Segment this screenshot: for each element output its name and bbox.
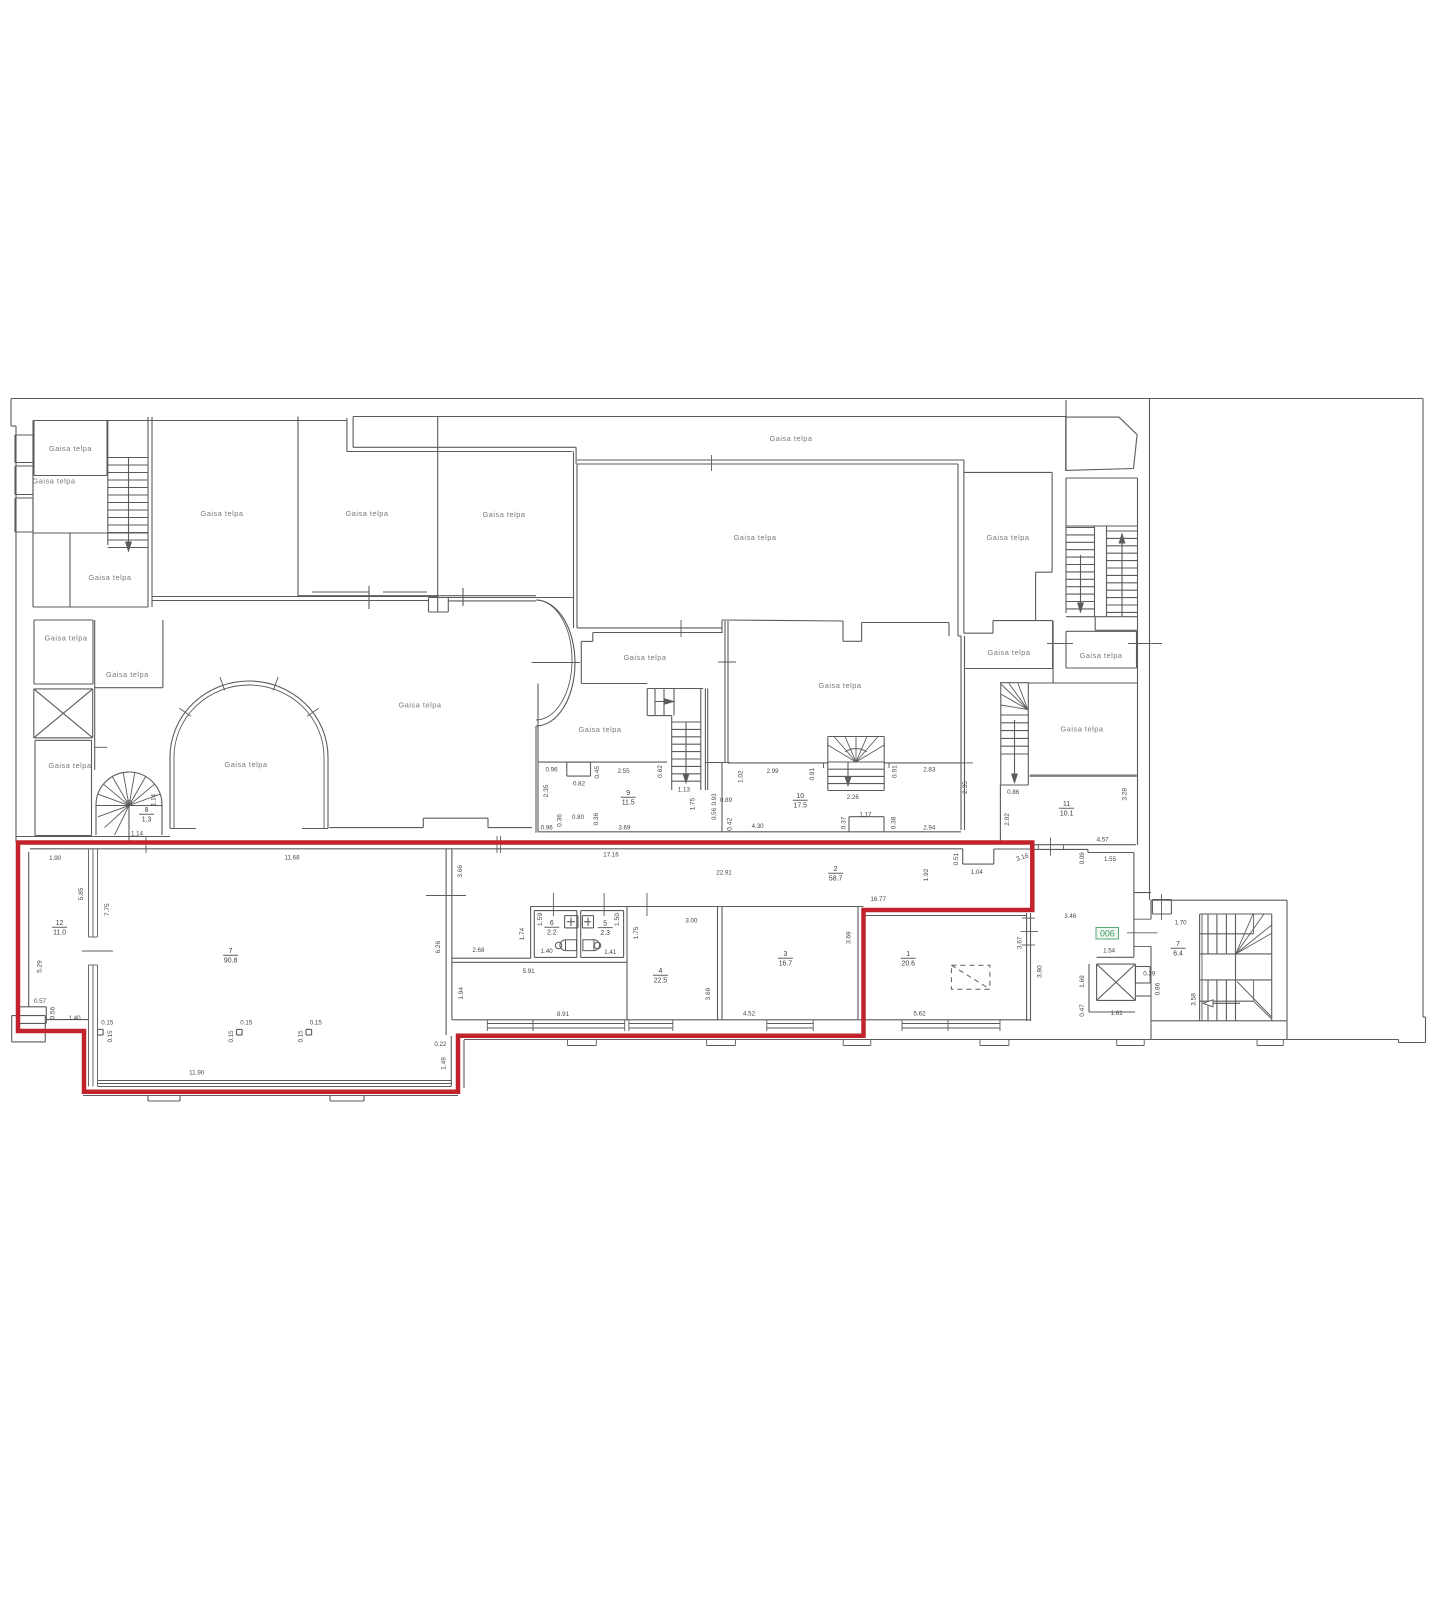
- svg-text:8.91: 8.91: [557, 1011, 570, 1018]
- svg-text:20.6: 20.6: [901, 960, 915, 967]
- svg-text:4.52: 4.52: [743, 1010, 756, 1017]
- svg-text:6.4: 6.4: [1173, 950, 1183, 957]
- svg-text:0.15: 0.15: [228, 1030, 235, 1043]
- svg-text:1.04: 1.04: [971, 869, 984, 876]
- svg-text:Gaisa telpa: Gaisa telpa: [225, 760, 268, 769]
- svg-text:1.55: 1.55: [1104, 856, 1117, 863]
- svg-text:0.15: 0.15: [101, 1019, 114, 1026]
- svg-text:1.17: 1.17: [859, 812, 872, 819]
- svg-text:Gaisa telpa: Gaisa telpa: [33, 477, 76, 486]
- svg-text:2.94: 2.94: [923, 824, 936, 831]
- svg-text:0.91: 0.91: [892, 765, 899, 778]
- svg-text:16.7: 16.7: [779, 960, 793, 967]
- svg-text:0.96: 0.96: [545, 767, 558, 774]
- svg-text:Gaisa telpa: Gaisa telpa: [49, 761, 92, 770]
- svg-text:2.02: 2.02: [1004, 813, 1011, 826]
- svg-text:Gaisa telpa: Gaisa telpa: [579, 725, 622, 734]
- svg-text:Gaisa telpa: Gaisa telpa: [624, 653, 667, 662]
- svg-text:5.91: 5.91: [523, 968, 536, 975]
- svg-text:0.62: 0.62: [657, 765, 664, 778]
- svg-text:1.13: 1.13: [678, 787, 691, 794]
- svg-text:1.40: 1.40: [69, 1015, 82, 1022]
- svg-text:0.15: 0.15: [297, 1030, 304, 1043]
- svg-text:2.2: 2.2: [547, 929, 557, 936]
- svg-text:0.93: 0.93: [711, 793, 718, 806]
- svg-text:3.66: 3.66: [457, 865, 464, 878]
- svg-text:1.75: 1.75: [690, 797, 697, 810]
- svg-text:0.36: 0.36: [557, 814, 564, 827]
- svg-text:12: 12: [56, 920, 64, 927]
- svg-text:Gaisa telpa: Gaisa telpa: [1061, 725, 1104, 734]
- svg-text:2.35: 2.35: [962, 781, 969, 794]
- svg-text:3.69: 3.69: [705, 987, 712, 1000]
- svg-text:Gaisa telpa: Gaisa telpa: [1080, 651, 1123, 660]
- svg-text:22.5: 22.5: [654, 977, 668, 984]
- svg-text:5.62: 5.62: [913, 1010, 926, 1017]
- svg-text:5: 5: [603, 921, 607, 928]
- svg-text:1.90: 1.90: [49, 855, 62, 862]
- svg-text:0.22: 0.22: [434, 1041, 447, 1048]
- svg-text:17.5: 17.5: [793, 802, 807, 809]
- svg-text:006: 006: [1100, 929, 1115, 939]
- svg-text:1.69: 1.69: [1079, 975, 1086, 988]
- svg-text:5.29: 5.29: [36, 960, 43, 973]
- svg-text:1.75: 1.75: [633, 926, 640, 939]
- svg-text:Gaisa telpa: Gaisa telpa: [45, 634, 88, 643]
- svg-text:1.54: 1.54: [1103, 947, 1116, 954]
- svg-text:0.15: 0.15: [310, 1019, 323, 1026]
- svg-text:11.0: 11.0: [53, 929, 66, 936]
- svg-text:Gaisa telpa: Gaisa telpa: [770, 434, 813, 443]
- svg-text:1.92: 1.92: [923, 868, 930, 881]
- svg-text:Gaisa telpa: Gaisa telpa: [89, 573, 132, 582]
- svg-text:Gaisa telpa: Gaisa telpa: [734, 533, 777, 542]
- svg-text:3.00: 3.00: [685, 918, 698, 925]
- svg-text:0.42: 0.42: [726, 817, 733, 830]
- svg-text:7.75: 7.75: [104, 903, 111, 916]
- svg-text:3.69: 3.69: [846, 931, 853, 944]
- svg-text:0.56: 0.56: [50, 1006, 57, 1019]
- svg-text:10.1: 10.1: [1060, 810, 1074, 817]
- svg-text:1.3: 1.3: [142, 816, 152, 823]
- svg-text:3.67: 3.67: [1016, 936, 1023, 949]
- svg-text:0.37: 0.37: [840, 816, 847, 829]
- svg-text:6.26: 6.26: [435, 940, 442, 953]
- svg-text:1.59: 1.59: [537, 913, 544, 926]
- svg-text:4: 4: [658, 968, 662, 975]
- svg-text:Gaisa telpa: Gaisa telpa: [201, 509, 244, 518]
- svg-text:3.69: 3.69: [618, 824, 631, 831]
- svg-text:1.70: 1.70: [1175, 920, 1188, 927]
- svg-text:2.26: 2.26: [847, 794, 860, 801]
- svg-text:2.55: 2.55: [617, 768, 630, 775]
- svg-text:0.86: 0.86: [1007, 789, 1020, 796]
- svg-text:9: 9: [626, 790, 630, 797]
- svg-text:2.68: 2.68: [472, 947, 485, 954]
- svg-text:4.30: 4.30: [752, 823, 765, 830]
- svg-text:6: 6: [550, 920, 554, 927]
- svg-text:1: 1: [906, 951, 910, 958]
- svg-text:3.58: 3.58: [1191, 993, 1198, 1006]
- svg-text:11.5: 11.5: [622, 799, 635, 806]
- svg-text:Gaisa telpa: Gaisa telpa: [49, 444, 92, 453]
- svg-text:3.46: 3.46: [1064, 913, 1077, 920]
- svg-text:1.49: 1.49: [441, 1057, 448, 1070]
- svg-text:0.38: 0.38: [890, 816, 897, 829]
- svg-text:0.82: 0.82: [573, 781, 586, 788]
- svg-text:1.40: 1.40: [541, 948, 554, 955]
- svg-text:Gaisa telpa: Gaisa telpa: [483, 510, 526, 519]
- svg-text:0.36: 0.36: [593, 812, 600, 825]
- svg-text:0.80: 0.80: [572, 814, 585, 821]
- svg-text:2.99: 2.99: [767, 768, 780, 775]
- svg-text:16.77: 16.77: [870, 896, 886, 903]
- svg-text:4.57: 4.57: [1097, 836, 1110, 843]
- svg-text:5.85: 5.85: [78, 887, 85, 900]
- svg-text:1.14: 1.14: [131, 831, 144, 838]
- svg-text:Gaisa telpa: Gaisa telpa: [988, 648, 1031, 657]
- svg-text:Gaisa telpa: Gaisa telpa: [399, 700, 442, 709]
- svg-text:7: 7: [1176, 941, 1180, 948]
- svg-text:11.68: 11.68: [284, 854, 300, 861]
- svg-text:0.09: 0.09: [1079, 852, 1086, 865]
- svg-text:0.39: 0.39: [1143, 970, 1156, 977]
- svg-text:0.89: 0.89: [720, 797, 733, 804]
- svg-text:0.15: 0.15: [240, 1019, 253, 1026]
- svg-text:22.91: 22.91: [716, 869, 732, 876]
- svg-text:0.57: 0.57: [34, 998, 47, 1005]
- svg-text:1.02: 1.02: [738, 770, 745, 783]
- svg-text:17.16: 17.16: [603, 852, 619, 859]
- svg-text:90.8: 90.8: [224, 957, 238, 964]
- svg-text:10: 10: [796, 793, 804, 800]
- svg-text:1.50: 1.50: [614, 913, 621, 926]
- svg-text:0.86: 0.86: [1154, 982, 1161, 995]
- svg-text:1.94: 1.94: [458, 987, 465, 1000]
- svg-text:Gaisa telpa: Gaisa telpa: [819, 681, 862, 690]
- svg-text:0.91: 0.91: [809, 767, 816, 780]
- svg-text:0.45: 0.45: [594, 766, 601, 779]
- svg-text:8: 8: [145, 807, 149, 814]
- svg-text:3.80: 3.80: [1037, 965, 1044, 978]
- svg-text:58.7: 58.7: [829, 875, 843, 882]
- svg-text:2.35: 2.35: [543, 784, 550, 797]
- svg-text:11: 11: [1063, 801, 1070, 808]
- svg-text:0.56: 0.56: [711, 807, 718, 820]
- svg-text:1.14: 1.14: [150, 793, 157, 806]
- svg-text:0.96: 0.96: [541, 824, 554, 831]
- svg-text:7: 7: [229, 948, 233, 955]
- svg-text:Gaisa telpa: Gaisa telpa: [987, 533, 1030, 542]
- svg-text:11.90: 11.90: [189, 1069, 205, 1076]
- svg-text:3.28: 3.28: [1122, 788, 1129, 801]
- svg-text:0.47: 0.47: [1079, 1004, 1086, 1017]
- svg-text:Gaisa telpa: Gaisa telpa: [346, 509, 389, 518]
- svg-text:1.61: 1.61: [1111, 1010, 1124, 1017]
- svg-text:1.41: 1.41: [604, 949, 617, 956]
- svg-text:2.3: 2.3: [600, 930, 610, 937]
- svg-text:2.83: 2.83: [923, 767, 936, 774]
- svg-text:3: 3: [783, 951, 787, 958]
- svg-text:0.15: 0.15: [107, 1030, 114, 1043]
- svg-text:2: 2: [834, 866, 838, 873]
- svg-text:Gaisa telpa: Gaisa telpa: [106, 670, 149, 679]
- svg-text:1.74: 1.74: [519, 927, 526, 940]
- svg-text:0.51: 0.51: [953, 852, 960, 865]
